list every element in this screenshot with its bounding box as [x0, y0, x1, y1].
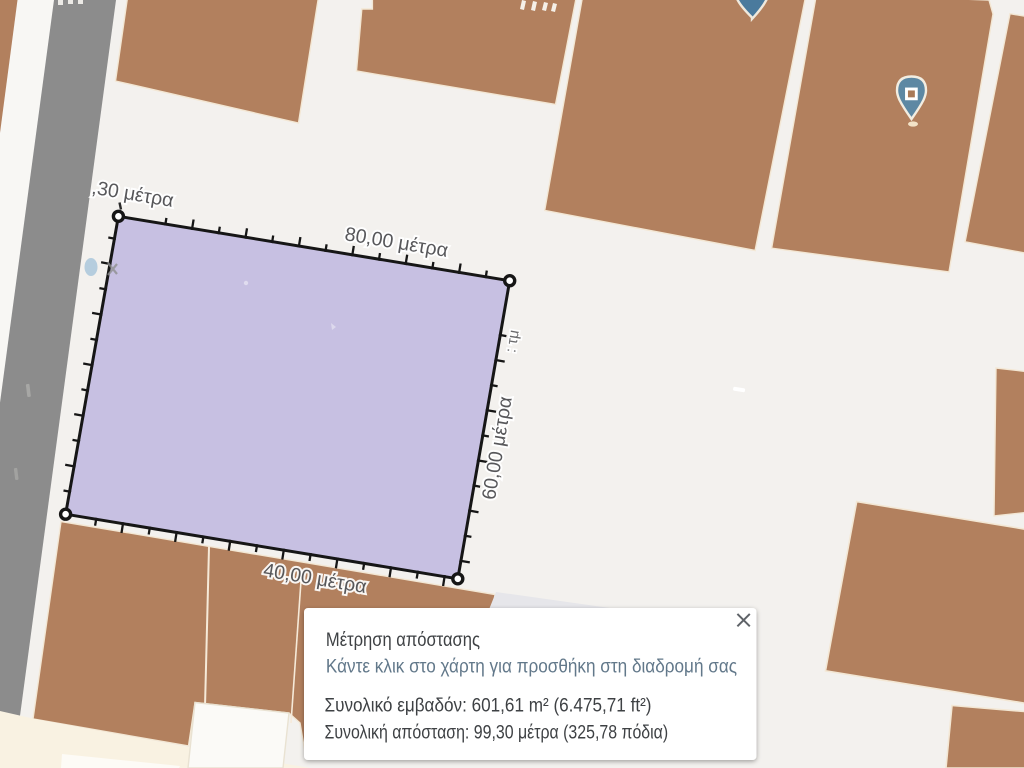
svg-text:Συνολική απόσταση: 99,30 μέτρα: Συνολική απόσταση: 99,30 μέτρα (325,78 π… [325, 721, 669, 743]
svg-text:Κάντε κλικ στο χάρτη για προσθ: Κάντε κλικ στο χάρτη για προσθήκη στη δι… [326, 656, 737, 677]
svg-text:Μέτρηση απόστασης: Μέτρηση απόστασης [326, 629, 480, 650]
svg-text:Συνολικό εμβαδόν: 601,61 m² (6: Συνολικό εμβαδόν: 601,61 m² (6.475,71 ft… [325, 695, 652, 716]
